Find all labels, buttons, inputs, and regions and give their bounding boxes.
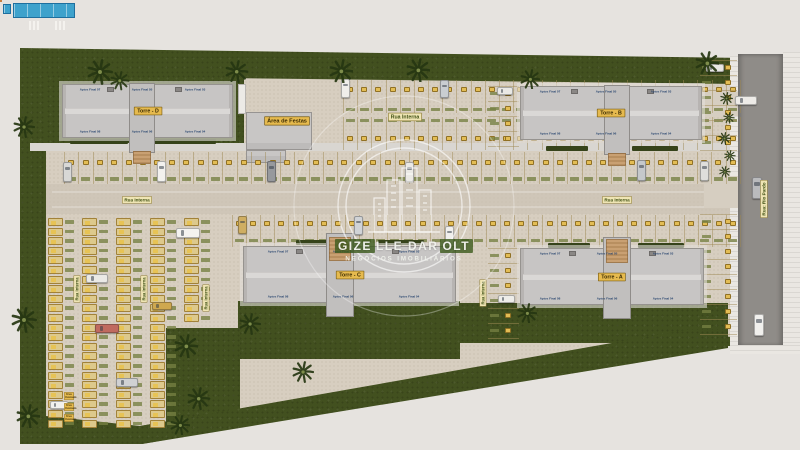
stall-id-label (133, 249, 142, 253)
parking-column (488, 86, 519, 146)
covered-parking-stall (116, 304, 131, 312)
covered-parking-stall (150, 324, 165, 332)
covered-parking-stall (82, 400, 97, 408)
car (735, 96, 757, 105)
stall-number-tag (543, 160, 549, 165)
apartment-label: Aptos Final 07 (539, 253, 561, 256)
stall-id-label (110, 177, 119, 181)
street-badge: Rua Interna (602, 196, 632, 204)
apartment-label: Aptos Final 07 (79, 89, 101, 92)
stall-id-label (65, 422, 74, 426)
street-badge: Rua Interna (74, 275, 81, 302)
stall-id-label (65, 316, 74, 320)
covered-parking-stall (150, 420, 165, 428)
apartment-label: Aptos Final 06 (595, 133, 617, 136)
stall-number-tag (126, 160, 132, 165)
covered-parking-stall (150, 285, 165, 293)
stall-id-label (702, 81, 711, 85)
stall-id-label (167, 297, 176, 301)
tower-label: Torre - B (597, 109, 625, 118)
covered-parking-stall (150, 400, 165, 408)
stall-id-label (201, 268, 210, 272)
parking-column (488, 248, 519, 338)
stall-id-label (167, 177, 176, 181)
covered-parking-stall (82, 352, 97, 360)
stall-number-tag (212, 160, 218, 165)
stall-id-label (201, 220, 210, 224)
stall-id-label (388, 108, 397, 112)
covered-parking-stall (82, 372, 97, 380)
stall-id-label (254, 177, 263, 181)
covered-parking-stall (116, 314, 131, 322)
stall-number-tag (600, 160, 606, 165)
car (95, 324, 119, 333)
stall-number-tag (547, 221, 553, 226)
common-use-badge: Uso Comum (64, 392, 74, 400)
stall-id-label (545, 239, 554, 243)
stall-number-tag (432, 87, 438, 92)
stall-id-label (99, 316, 108, 320)
roof-equipment (571, 89, 578, 94)
stall-id-label (672, 239, 681, 243)
stall-id-label (432, 239, 441, 243)
stall-id-label (445, 119, 454, 123)
stall-id-label (277, 239, 286, 243)
stall-id-label (685, 177, 694, 181)
covered-parking-stall (48, 304, 63, 312)
covered-parking-stall (116, 276, 131, 284)
stall-id-label (541, 177, 550, 181)
stall-id-label (484, 177, 493, 181)
stall-id-label (587, 239, 596, 243)
stall-number-tag (514, 160, 520, 165)
covered-parking-stall (82, 391, 97, 399)
palm-tree-icon (406, 58, 431, 83)
sun-loungers (29, 21, 41, 30)
stall-id-label (297, 177, 306, 181)
tower-label: Torre - A (598, 272, 626, 281)
covered-parking-stall (48, 276, 63, 284)
stall-number-tag (97, 160, 103, 165)
stall-id-label (133, 374, 142, 378)
stall-id-label (167, 287, 176, 291)
car (86, 274, 108, 283)
covered-parking-stall (82, 304, 97, 312)
apartment-label: Aptos Final 04 (398, 296, 420, 299)
building-torre-c: Torre - C Aptos Final 07Aptos Final 05Ap… (243, 246, 456, 303)
covered-parking-stall (48, 333, 63, 341)
hedge (632, 146, 678, 151)
stall-number-tag (586, 160, 592, 165)
stall-number-tag (434, 221, 440, 226)
covered-parking-stall (48, 285, 63, 293)
stall-number-tag (725, 65, 731, 70)
stall-id-label (99, 345, 108, 349)
stall-id-label (599, 177, 608, 181)
stall-number-tag (307, 221, 313, 226)
covered-parking-stall (184, 276, 199, 284)
roof-equipment (296, 249, 303, 254)
stall-id-label (99, 239, 108, 243)
stall-id-label (559, 239, 568, 243)
covered-parking-stall (48, 343, 63, 351)
stall-id-label (702, 141, 711, 145)
apartment-label: Aptos Final 03 (650, 91, 672, 94)
stall-id-label (133, 326, 142, 330)
stall-id-label (374, 119, 383, 123)
stall-number-tag (250, 221, 256, 226)
stall-id-label (459, 119, 468, 123)
stall-id-label (211, 177, 220, 181)
stall-id-label (99, 306, 108, 310)
covered-parking-stall (48, 420, 63, 428)
stall-number-tag (390, 87, 396, 92)
main-road-badge: Rua: Rio Pardo (760, 180, 768, 218)
stall-number-tag (198, 160, 204, 165)
stall-id-label (490, 254, 499, 258)
stall-id-label (133, 412, 142, 416)
apartment-label: Aptos Final 05 (595, 91, 617, 94)
stall-number-tag (405, 221, 411, 226)
apartment-label: Aptos Final 06 (332, 296, 354, 299)
palm-tree-icon (720, 92, 733, 105)
palm-tree-icon (517, 303, 538, 324)
covered-parking-stall (184, 247, 199, 255)
stall-id-label (167, 249, 176, 253)
stall-id-label (133, 316, 142, 320)
covered-parking-stall (150, 276, 165, 284)
stall-id-label (360, 119, 369, 123)
stall-id-label (702, 126, 711, 130)
stall-id-label (513, 177, 522, 181)
stall-number-tag (375, 87, 381, 92)
stall-id-label (402, 108, 411, 112)
stall-id-label (702, 220, 711, 224)
stall-id-label (201, 316, 210, 320)
stall-id-label (133, 345, 142, 349)
stall-id-label (311, 177, 320, 181)
stall-id-label (416, 108, 425, 112)
covered-parking-stall (150, 266, 165, 274)
hedge (70, 139, 128, 144)
stall-id-label (702, 235, 711, 239)
sun-loungers (55, 21, 67, 30)
roof-equipment (569, 251, 576, 256)
stair-core (129, 83, 155, 153)
stall-id-label (99, 258, 108, 262)
covered-parking-stall (150, 372, 165, 380)
stall-id-label (167, 239, 176, 243)
building-torre-a: Torre - A Aptos Final 07Aptos Final 05Ap… (520, 248, 704, 305)
covered-parking-stall (82, 314, 97, 322)
stall-id-label (473, 119, 482, 123)
common-use-badge: Uso Comum (64, 414, 74, 422)
stall-id-label (99, 364, 108, 368)
car (354, 216, 363, 235)
stall-number-tag (390, 136, 396, 141)
stall-number-tag (659, 221, 665, 226)
stall-number-tag (442, 160, 448, 165)
stall-id-label (426, 177, 435, 181)
stall-number-tag (321, 221, 327, 226)
palm-tree-icon (225, 60, 248, 83)
stall-id-label (167, 393, 176, 397)
stall-number-tag (475, 136, 481, 141)
apartment-label: Aptos Final 03 (184, 89, 206, 92)
stall-id-label (702, 111, 711, 115)
covered-parking-stall (82, 295, 97, 303)
stall-id-label (374, 108, 383, 112)
stall-number-tag (446, 136, 452, 141)
stall-number-tag (432, 136, 438, 141)
covered-parking-stall (48, 256, 63, 264)
stall-number-tag (658, 160, 664, 165)
stall-number-tag (255, 160, 261, 165)
stall-number-tag (725, 324, 731, 329)
apartment-label: Aptos Final 04 (650, 133, 672, 136)
palm-tree-icon (724, 150, 736, 162)
stall-number-tag (471, 160, 477, 165)
stall-id-label (469, 177, 478, 181)
stall-id-label (326, 177, 335, 181)
stall-number-tag (327, 160, 333, 165)
tower-label: Torre - C (335, 270, 363, 279)
stall-id-label (225, 177, 234, 181)
covered-parking-stall (48, 228, 63, 236)
apartment-label: Aptos Final 08 (539, 133, 561, 136)
stall-id-label (490, 137, 499, 141)
stall-id-label (613, 177, 622, 181)
covered-parking-stall (48, 372, 63, 380)
covered-parking-stall (48, 324, 63, 332)
covered-parking-stall (48, 237, 63, 245)
apartment-label: Aptos Final 03 (398, 251, 420, 254)
covered-parking-stall (116, 228, 131, 236)
street-badge: Rua Interna (203, 284, 210, 311)
stall-id-label (573, 239, 582, 243)
stall-id-label (702, 96, 711, 100)
stall-id-label (644, 239, 653, 243)
palm-tree-icon (174, 334, 199, 359)
stall-id-label (474, 239, 483, 243)
stall-number-tag (687, 160, 693, 165)
stall-number-tag (505, 268, 511, 273)
stall-id-label (167, 402, 176, 406)
stall-number-tag (370, 160, 376, 165)
stall-id-label (658, 239, 667, 243)
covered-parking-stall (116, 420, 131, 428)
stall-number-tag (715, 160, 721, 165)
party-area-badge: Área de Festas (264, 116, 309, 125)
stall-id-label (95, 177, 104, 181)
stall-id-label (383, 177, 392, 181)
palm-tree-icon (170, 415, 191, 436)
covered-parking-stall (116, 352, 131, 360)
street-badge: Rua Interna (141, 275, 148, 302)
stall-id-label (133, 402, 142, 406)
covered-parking-stall (116, 400, 131, 408)
covered-parking-stall (150, 228, 165, 236)
stall-id-label (99, 220, 108, 224)
covered-parking-stall (150, 314, 165, 322)
stall-number-tag (404, 136, 410, 141)
road-marking (52, 191, 732, 193)
covered-parking-stall (82, 266, 97, 274)
stall-number-tag (461, 87, 467, 92)
stall-number-tag (83, 160, 89, 165)
stall-number-tag (725, 294, 731, 299)
stall-number-tag (490, 221, 496, 226)
stall-id-label (167, 220, 176, 224)
stall-number-tag (603, 221, 609, 226)
covered-parking-stall (184, 285, 199, 293)
stall-id-label (65, 374, 74, 378)
stall-id-label (490, 107, 499, 111)
stall-number-tag (561, 221, 567, 226)
covered-parking-stall (48, 247, 63, 255)
stall-number-tag (505, 253, 511, 258)
palm-tree-icon (187, 387, 210, 410)
covered-parking-stall (48, 266, 63, 274)
building-torre-d: Torre - D Aptos Final 07Aptos Final 05Ap… (62, 84, 233, 138)
stall-id-label (630, 239, 639, 243)
stall-id-label (503, 239, 512, 243)
stall-id-label (249, 239, 258, 243)
apartment-label: Aptos Final 05 (596, 253, 618, 256)
stall-id-label (362, 239, 371, 243)
palm-tree-icon (723, 112, 735, 124)
sidewalk (783, 52, 800, 354)
covered-parking-stall (82, 381, 97, 389)
stall-id-label (354, 177, 363, 181)
stall-id-label (167, 316, 176, 320)
stall-id-label (239, 177, 248, 181)
hedge (378, 240, 424, 245)
stall-number-tag (462, 221, 468, 226)
covered-parking-stall (82, 247, 97, 255)
car (498, 295, 515, 303)
stall-id-label (133, 335, 142, 339)
stall-id-label (346, 119, 355, 123)
stall-id-label (459, 108, 468, 112)
stall-number-tag (457, 160, 463, 165)
stall-id-label (441, 177, 450, 181)
car (116, 378, 138, 387)
stall-number-tag (725, 309, 731, 314)
stall-number-tag (629, 160, 635, 165)
stall-id-label (360, 108, 369, 112)
stall-id-label (167, 268, 176, 272)
stall-number-tag (725, 279, 731, 284)
stall-number-tag (361, 87, 367, 92)
stall-id-label (702, 310, 711, 314)
car (440, 80, 449, 98)
hedge (152, 139, 216, 144)
stall-id-label (490, 284, 499, 288)
stall-id-label (167, 258, 176, 262)
stall-id-label (99, 335, 108, 339)
stall-number-tag (404, 87, 410, 92)
stall-id-label (65, 220, 74, 224)
palm-tree-icon (719, 166, 731, 178)
stall-id-label (490, 122, 499, 126)
stall-id-label (133, 393, 142, 397)
stall-id-label (133, 422, 142, 426)
stall-number-tag (361, 136, 367, 141)
roof-equipment (175, 87, 182, 92)
car (157, 161, 166, 182)
stall-id-label (139, 177, 148, 181)
covered-parking-stall (116, 343, 131, 351)
stall-id-label (99, 393, 108, 397)
stall-id-label (527, 177, 536, 181)
stall-id-label (167, 374, 176, 378)
covered-parking-stall (116, 237, 131, 245)
stall-number-tag (278, 221, 284, 226)
stall-id-label (65, 249, 74, 253)
palm-tree-icon (13, 116, 35, 138)
kids-pool (3, 4, 11, 14)
stall-number-tag (631, 221, 637, 226)
stall-id-label (99, 268, 108, 272)
covered-parking-stall (82, 410, 97, 418)
covered-parking-stall (184, 295, 199, 303)
stall-number-tag (645, 221, 651, 226)
car (176, 228, 200, 238)
apartment-label: Aptos Final 06 (596, 298, 618, 301)
stall-id-label (656, 177, 665, 181)
entrance-canopy (606, 239, 628, 263)
stall-id-label (99, 374, 108, 378)
stall-number-tag (418, 136, 424, 141)
stall-id-label (473, 108, 482, 112)
stall-number-tag (428, 160, 434, 165)
covered-parking-stall (48, 381, 63, 389)
stall-id-label (167, 230, 176, 234)
stall-number-tag (111, 160, 117, 165)
stall-id-label (167, 383, 176, 387)
covered-parking-stall (48, 352, 63, 360)
covered-parking-stall (150, 218, 165, 226)
covered-parking-stall (48, 391, 63, 399)
hedge (546, 146, 588, 151)
stall-id-label (133, 239, 142, 243)
stall-id-label (65, 326, 74, 330)
covered-parking-stall (184, 304, 199, 312)
covered-parking-stall (150, 381, 165, 389)
stall-number-tag (557, 160, 563, 165)
stall-id-label (99, 249, 108, 253)
apartment-label: Aptos Final 08 (539, 298, 561, 301)
stall-number-tag (672, 160, 678, 165)
car (637, 160, 646, 181)
car (445, 226, 454, 245)
stall-number-tag (575, 221, 581, 226)
covered-parking-stall (150, 410, 165, 418)
covered-parking-stall (150, 362, 165, 370)
stall-number-tag (500, 160, 506, 165)
stall-number-tag (674, 221, 680, 226)
stall-number-tag (725, 249, 731, 254)
stall-id-label (196, 177, 205, 181)
stall-id-label (167, 278, 176, 282)
covered-parking-stall (150, 247, 165, 255)
covered-parking-stall (150, 256, 165, 264)
stall-id-label (702, 325, 711, 329)
palm-tree-icon (520, 69, 541, 90)
stall-id-label (201, 278, 210, 282)
stall-id-label (431, 119, 440, 123)
